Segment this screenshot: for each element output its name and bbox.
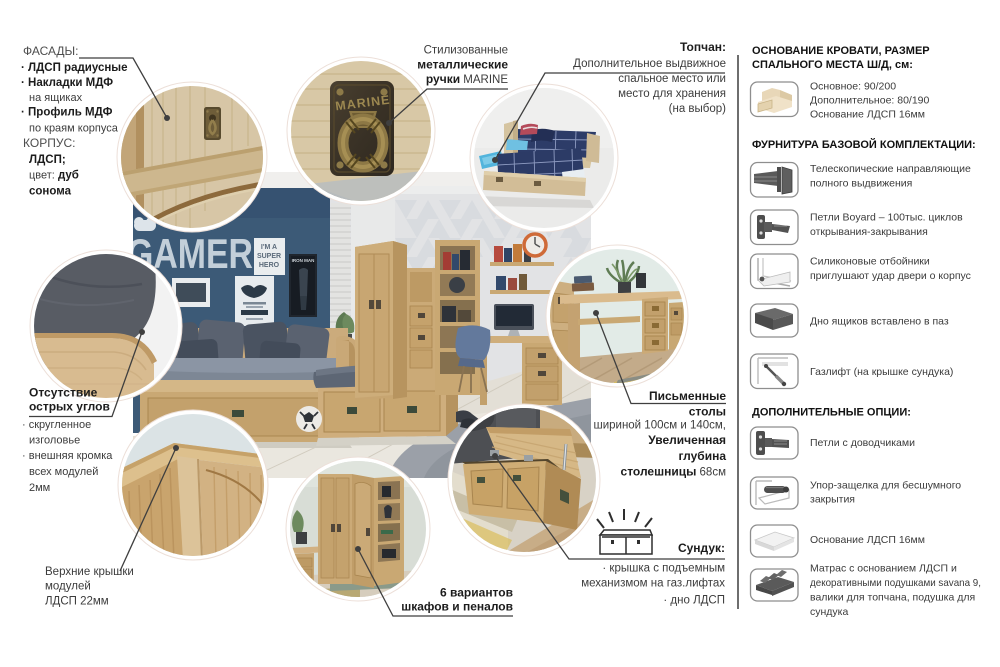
svg-text:цвет: дуб: цвет: дуб [29,170,79,182]
svg-text:SUPER: SUPER [257,253,281,260]
svg-text:открывания-закрывания: открывания-закрывания [810,226,928,238]
svg-text:шириной 100см и 140см,: шириной 100см и 140см, [593,420,726,432]
svg-text:КОРПУС:: КОРПУС: [23,136,75,150]
svg-text:глубина: глубина [678,449,726,463]
svg-text:механизмом на газ.лифтах: механизмом на газ.лифтах [581,578,725,590]
svg-text:закрытия: закрытия [810,494,855,506]
svg-text:ОСНОВАНИЕ КРОВАТИ, РАЗМЕР: ОСНОВАНИЕ КРОВАТИ, РАЗМЕР [752,45,930,57]
svg-text:острых углов: острых углов [29,400,110,414]
svg-text:Основание ЛДСП 16мм: Основание ЛДСП 16мм [810,109,925,121]
svg-text:металлические: металлические [417,58,508,72]
svg-text:Увеличенная: Увеличенная [648,433,726,447]
svg-text:Дополнительное: 80/190: Дополнительное: 80/190 [810,95,930,107]
svg-text:Силиконовые отбойники: Силиконовые отбойники [810,256,930,268]
svg-text:на ящиках: на ящиках [29,92,83,104]
svg-text:Матрас с основанием ЛДСП и: Матрас с основанием ЛДСП и [810,563,957,575]
svg-text:Письменные: Письменные [649,389,726,403]
svg-text:модулей: модулей [45,581,91,593]
svg-text:2мм: 2мм [29,482,50,494]
svg-text:ФАСАДЫ:: ФАСАДЫ: [23,44,79,58]
svg-text:столешницы 68см: столешницы 68см [621,465,727,479]
svg-text:ДОПОЛНИТЕЛЬНЫЕ ОПЦИИ:: ДОПОЛНИТЕЛЬНЫЕ ОПЦИИ: [752,407,911,419]
svg-text:· скругленное: · скругленное [22,419,91,431]
svg-text:Стилизованные: Стилизованные [424,45,508,57]
svg-text:ручки MARINE: ручки MARINE [426,72,508,86]
svg-text:· ЛДСП радиусные: · ЛДСП радиусные [21,62,128,74]
svg-text:СПАЛЬНОГО МЕСТА Ш/Д, см:: СПАЛЬНОГО МЕСТА Ш/Д, см: [752,59,913,71]
svg-text:полного выдвижения: полного выдвижения [810,178,912,190]
svg-text:6 вариантов: 6 вариантов [440,586,513,600]
svg-text:· Накладки МДФ: · Накладки МДФ [21,77,113,89]
svg-text:место для хранения: место для хранения [618,88,726,100]
svg-text:декоративными подушками savana: декоративными подушками savana 9, [810,577,981,589]
svg-text:ЛДСП 22мм: ЛДСП 22мм [45,596,109,608]
svg-text:Газлифт (на крышке сундука): Газлифт (на крышке сундука) [810,366,953,378]
svg-text:ФУРНИТУРА БАЗОВОЙ КОМПЛЕКТАЦИИ: ФУРНИТУРА БАЗОВОЙ КОМПЛЕКТАЦИИ: [752,138,976,151]
svg-text:(на выбор): (на выбор) [669,103,727,115]
svg-text:Телескопические направляющие: Телескопические направляющие [810,163,971,175]
svg-text:ЛДСП;: ЛДСП; [29,154,66,166]
svg-text:IRON MAN: IRON MAN [292,258,315,263]
svg-text:шкафов и пеналов: шкафов и пеналов [401,600,513,614]
svg-text:Сундук:: Сундук: [678,541,725,555]
svg-text:Основное: 90/200: Основное: 90/200 [810,81,896,93]
svg-text:· крышка с подъемным: · крышка с подъемным [602,563,725,575]
svg-text:валики для топчана, подушка дл: валики для топчана, подушка для [810,592,975,604]
svg-text:по краям корпуса: по краям корпуса [29,123,119,135]
svg-text:столы: столы [689,405,726,419]
svg-text:Дополнительное выдвижное: Дополнительное выдвижное [573,58,726,70]
svg-text:сонома: сонома [29,186,72,198]
svg-text:Основание ЛДСП 16мм: Основание ЛДСП 16мм [810,534,925,546]
svg-text:Отсутствие: Отсутствие [29,386,98,400]
svg-text:HERO: HERO [259,262,280,269]
svg-text:· дно ЛДСП: · дно ЛДСП [663,595,725,607]
svg-text:Топчан:: Топчан: [680,40,726,54]
svg-text:Дно ящиков вставлено в паз: Дно ящиков вставлено в паз [810,316,949,328]
svg-text:Петли с доводчиками: Петли с доводчиками [810,437,915,449]
svg-text:всех модулей: всех модулей [29,466,98,478]
svg-text:приглушают удар двери о корпус: приглушают удар двери о корпус [810,270,971,282]
svg-text:Упор-защелка для бесшумного: Упор-защелка для бесшумного [810,480,961,492]
svg-text:сундука: сундука [810,606,848,618]
svg-text:· внешняя кромка: · внешняя кромка [22,450,113,462]
svg-text:I'M A: I'M A [261,244,277,251]
svg-text:Верхние крышки: Верхние крышки [45,566,134,578]
svg-text:Петли Boyard – 100тыс. циклов: Петли Boyard – 100тыс. циклов [810,212,963,224]
svg-text:· Профиль МДФ: · Профиль МДФ [21,107,113,119]
svg-text:изголовье: изголовье [29,435,80,447]
svg-text:спальное место или: спальное место или [618,73,726,85]
